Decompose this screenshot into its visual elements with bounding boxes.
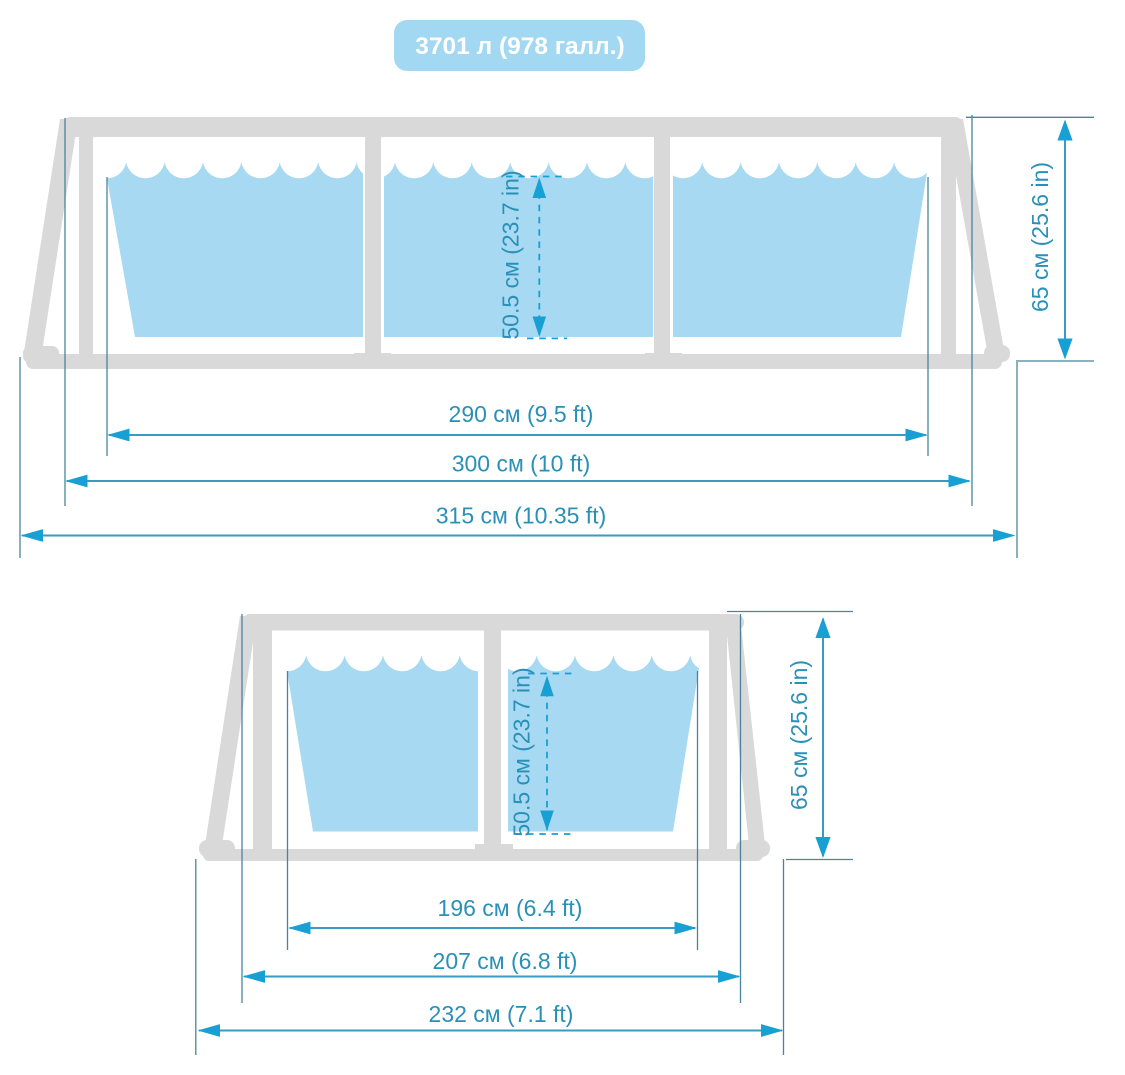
svg-text:65 см (25.6 in): 65 см (25.6 in) [1027,162,1053,312]
svg-text:300 см (10 ft): 300 см (10 ft) [452,451,591,477]
svg-text:290 см (9.5 ft): 290 см (9.5 ft) [449,401,594,427]
svg-text:207 см (6.8 ft): 207 см (6.8 ft) [433,948,578,974]
svg-text:50.5 см (23.7 in): 50.5 см (23.7 in) [498,170,524,339]
svg-text:315 см (10.35 ft): 315 см (10.35 ft) [436,503,607,529]
svg-text:3701 л (978 галл.): 3701 л (978 галл.) [415,33,624,60]
svg-text:50.5 см (23.7 in): 50.5 см (23.7 in) [509,667,535,836]
svg-text:65 см (25.6 in): 65 см (25.6 in) [786,660,812,810]
svg-text:232 см (7.1 ft): 232 см (7.1 ft) [429,1001,574,1027]
svg-text:196 см (6.4 ft): 196 см (6.4 ft) [438,895,583,921]
